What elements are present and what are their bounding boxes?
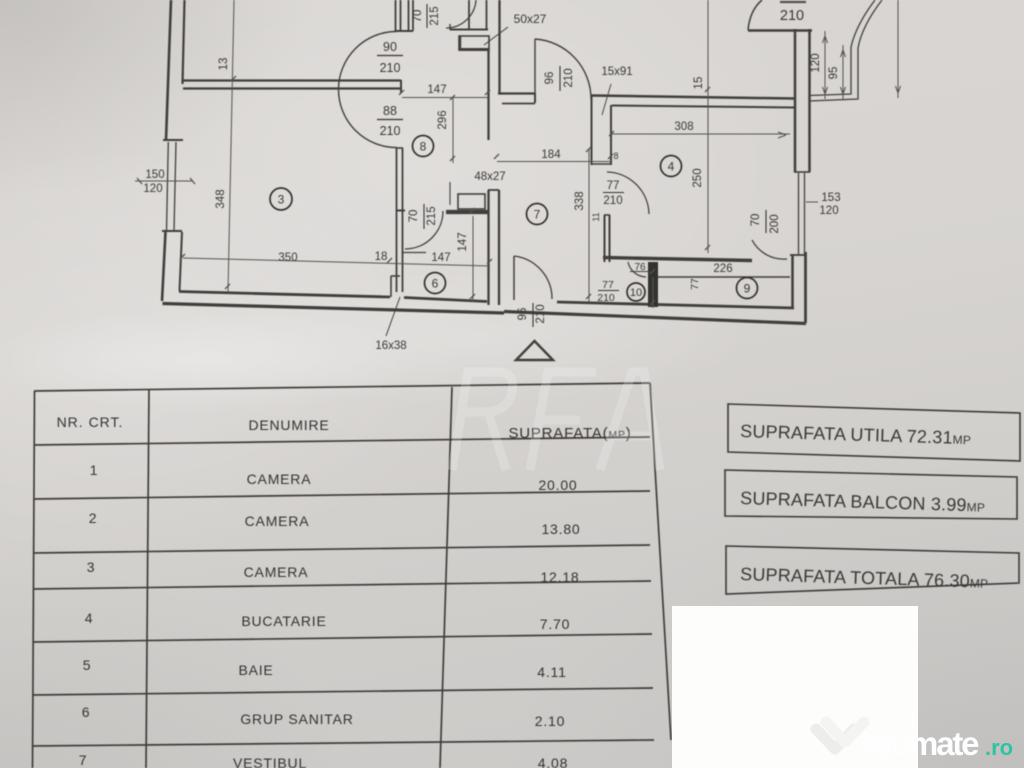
svg-text:120: 120 (819, 205, 838, 217)
svg-text:DENUMIRE: DENUMIRE (248, 417, 329, 433)
svg-text:215: 215 (426, 206, 438, 225)
svg-text:6: 6 (82, 704, 91, 720)
svg-text:4.08: 4.08 (538, 755, 568, 768)
svg-text:308: 308 (674, 121, 693, 133)
svg-text:10: 10 (630, 287, 642, 299)
svg-text:SUPRAFATA TOTALA 76.30MP: SUPRAFATA TOTALA 76.30MP (740, 564, 989, 592)
svg-text:70: 70 (750, 214, 762, 227)
svg-text:48x27: 48x27 (474, 171, 505, 183)
svg-text:147: 147 (457, 232, 469, 251)
svg-text:210: 210 (563, 68, 575, 87)
svg-text:210: 210 (380, 61, 401, 75)
svg-text:15x91: 15x91 (601, 66, 632, 78)
svg-text:150: 150 (145, 169, 164, 181)
svg-text:5: 5 (83, 657, 92, 673)
svg-text:50x27: 50x27 (514, 12, 547, 26)
svg-text:7.70: 7.70 (540, 616, 570, 632)
svg-text:184: 184 (541, 149, 561, 161)
svg-text:77: 77 (689, 278, 701, 290)
svg-text:BAIE: BAIE (238, 662, 273, 678)
svg-text:3: 3 (87, 559, 96, 575)
svg-text:7: 7 (79, 752, 88, 768)
svg-text:4: 4 (668, 160, 675, 174)
svg-text:9: 9 (744, 282, 751, 296)
svg-text:96: 96 (517, 308, 529, 321)
svg-text:lajumate: lajumate (861, 725, 979, 762)
svg-text:210: 210 (603, 195, 622, 207)
svg-text:4.11: 4.11 (537, 664, 566, 680)
svg-text:15: 15 (693, 77, 705, 90)
svg-text:70: 70 (412, 10, 424, 23)
svg-text:215: 215 (429, 6, 441, 25)
svg-text:11: 11 (591, 212, 601, 221)
svg-text:CAMERA: CAMERA (244, 564, 309, 580)
svg-text:2.10: 2.10 (535, 713, 565, 729)
svg-text:6: 6 (432, 277, 439, 291)
svg-text:8: 8 (420, 140, 427, 154)
svg-text:210: 210 (535, 304, 547, 323)
svg-text:120: 120 (143, 183, 162, 195)
svg-text:77: 77 (602, 279, 614, 291)
svg-text:88: 88 (383, 104, 397, 118)
svg-text:77: 77 (607, 180, 620, 192)
svg-text:226: 226 (713, 263, 732, 275)
svg-text:BUCATARIE: BUCATARIE (241, 613, 326, 629)
svg-text:GRUP SANITAR: GRUP SANITAR (240, 711, 353, 727)
svg-text:3: 3 (278, 193, 285, 207)
svg-text:153: 153 (821, 192, 840, 204)
svg-text:338: 338 (574, 191, 586, 210)
svg-text:.ro: .ro (985, 735, 1013, 760)
svg-text:CAMERA: CAMERA (245, 513, 310, 529)
svg-text:SUPRAFATA BALCON 3.99MP: SUPRAFATA BALCON 3.99MP (740, 488, 986, 516)
svg-text:2: 2 (89, 510, 98, 526)
svg-text:13: 13 (218, 58, 230, 71)
svg-text:70: 70 (408, 210, 420, 223)
svg-text:7: 7 (534, 208, 541, 222)
svg-text:210: 210 (380, 124, 401, 138)
svg-text:4: 4 (85, 610, 94, 626)
svg-text:SUPRAFATA UTILA 72.31MP: SUPRAFATA UTILA 72.31MP (740, 421, 972, 448)
svg-text:18: 18 (375, 251, 388, 263)
svg-text:1: 1 (90, 462, 99, 478)
svg-text:210: 210 (597, 292, 615, 304)
svg-text:16x38: 16x38 (375, 340, 406, 352)
svg-text:120: 120 (810, 53, 822, 72)
svg-text:VESTIBUL: VESTIBUL (233, 755, 307, 768)
svg-text:76: 76 (634, 262, 646, 273)
svg-text:210: 210 (780, 8, 804, 24)
svg-text:13.80: 13.80 (541, 521, 580, 537)
svg-text:348: 348 (215, 189, 227, 208)
svg-text:12.18: 12.18 (540, 569, 579, 585)
svg-text:350: 350 (278, 252, 297, 264)
svg-text:20.00: 20.00 (538, 477, 577, 493)
svg-text:147: 147 (427, 84, 446, 96)
svg-text:NR. CRT.: NR. CRT. (57, 414, 124, 430)
svg-text:CAMERA: CAMERA (247, 471, 312, 487)
svg-text:200: 200 (769, 214, 781, 233)
svg-text:8: 8 (613, 151, 618, 161)
svg-text:90: 90 (383, 40, 397, 54)
svg-text:250: 250 (692, 168, 704, 187)
svg-text:147: 147 (431, 252, 450, 264)
svg-text:296: 296 (437, 110, 449, 129)
svg-text:96: 96 (544, 72, 556, 85)
svg-text:95: 95 (828, 67, 840, 80)
